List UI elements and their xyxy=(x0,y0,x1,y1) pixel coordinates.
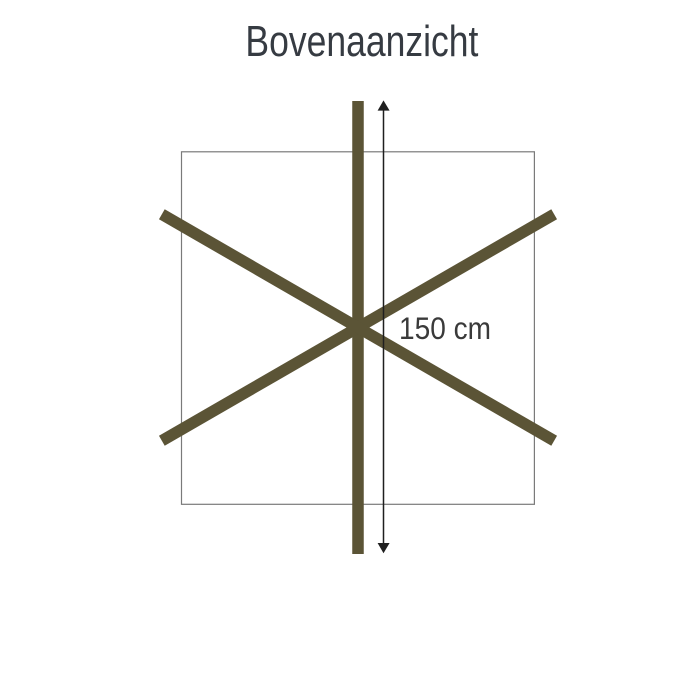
svg-text:150 cm: 150 cm xyxy=(399,310,491,346)
svg-text:Bovenaanzicht: Bovenaanzicht xyxy=(245,17,478,66)
